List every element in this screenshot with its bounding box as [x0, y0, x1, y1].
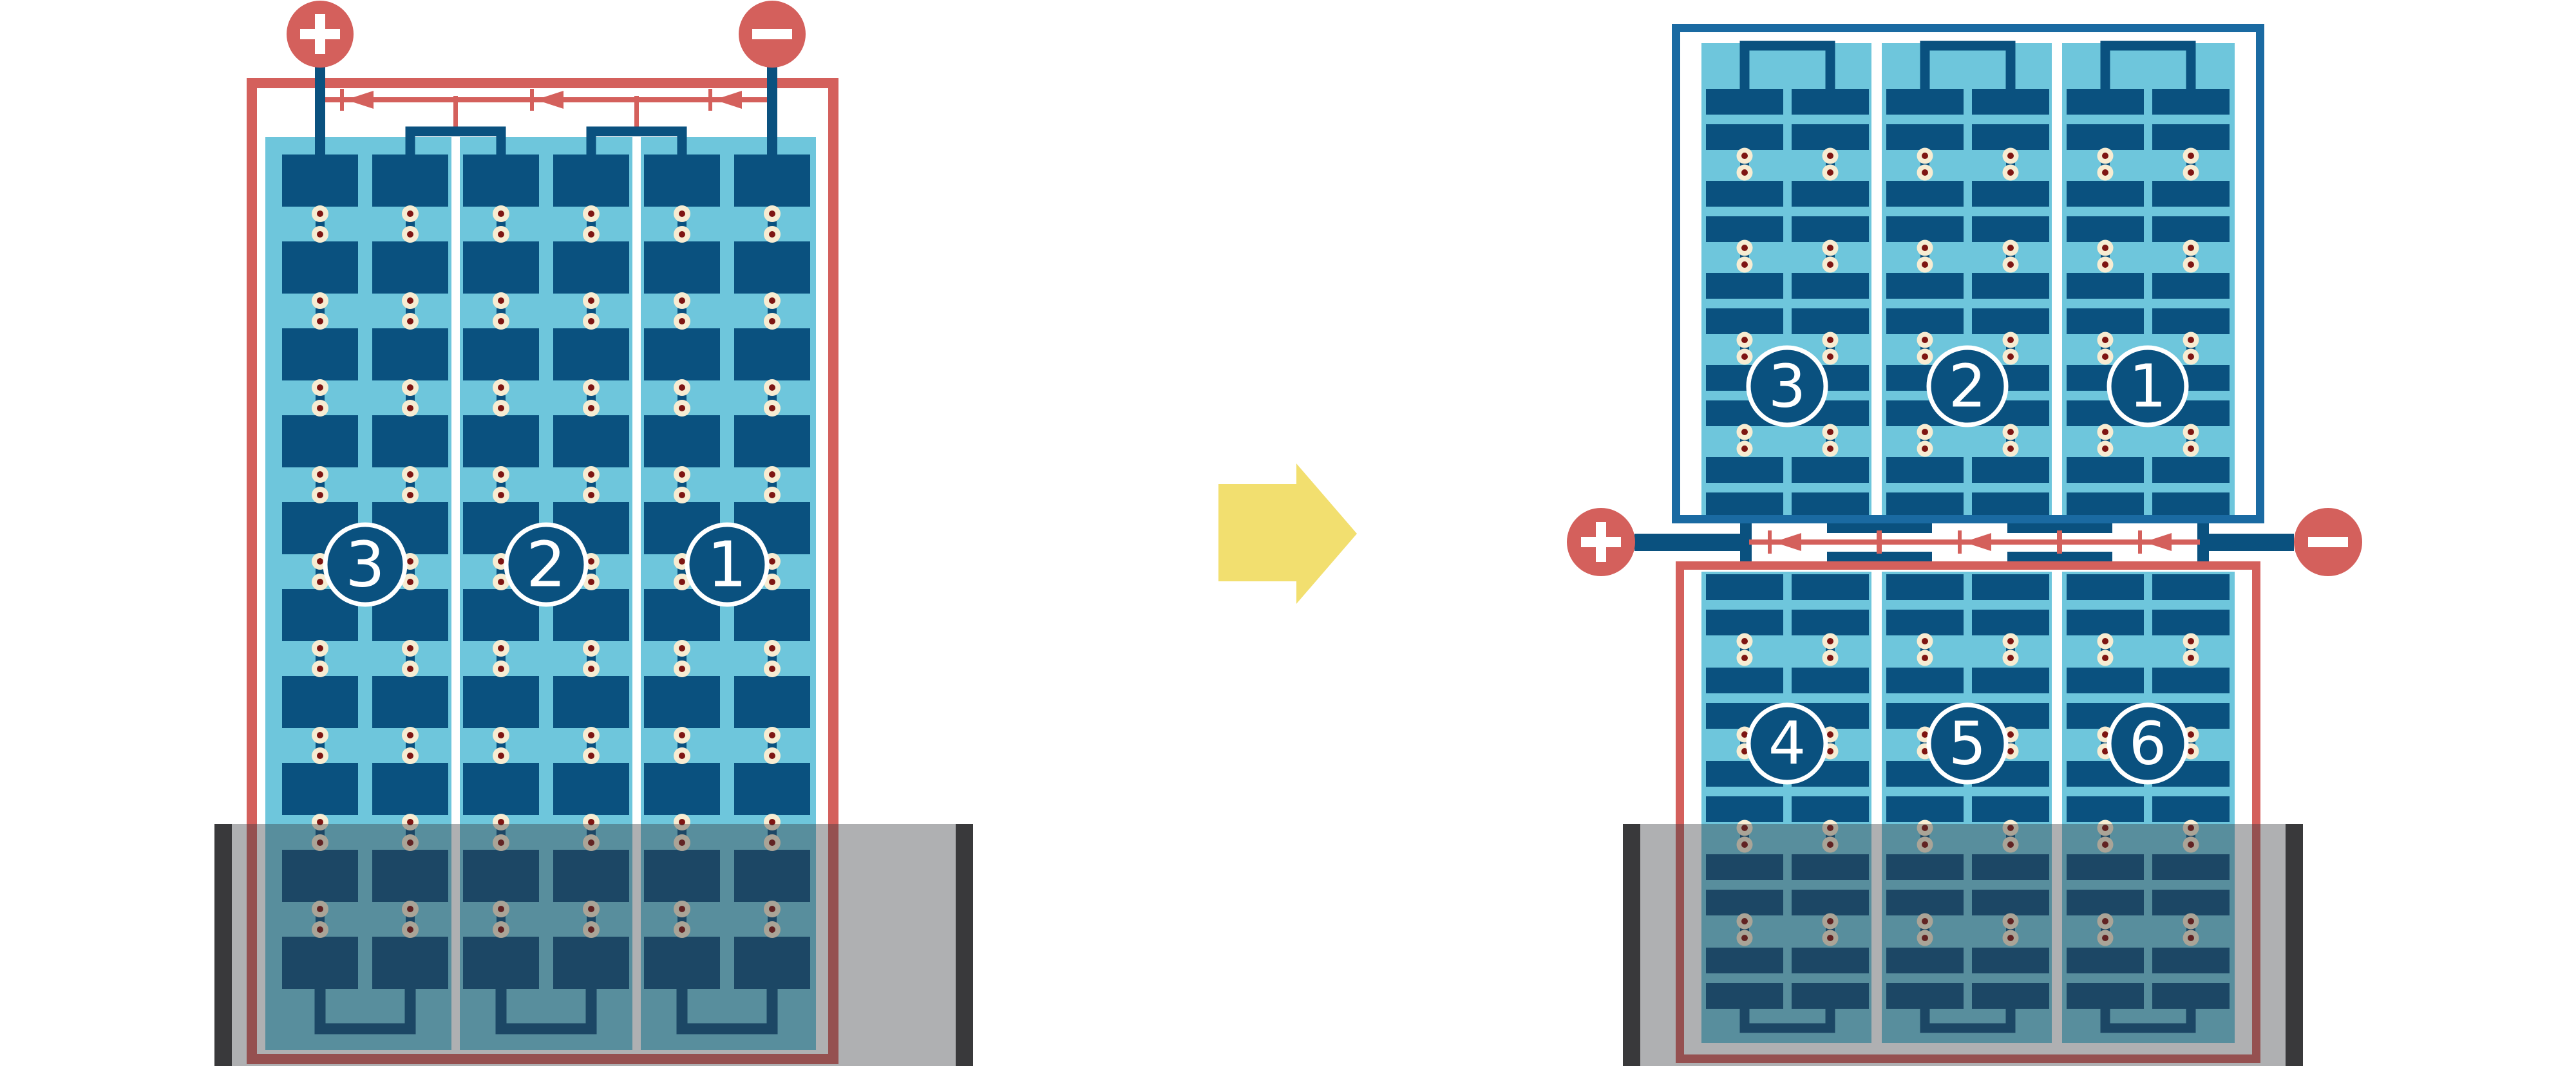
shade-edge-bar: [956, 824, 973, 1066]
solar-cell: [553, 155, 629, 207]
half-cut-cell: [1792, 668, 1869, 693]
solder-joint-core: [2102, 655, 2108, 661]
solder-joint-core: [2188, 429, 2194, 435]
solder-joint-core: [1741, 445, 1748, 452]
solar-cell: [553, 676, 629, 728]
solder-joint-core: [769, 318, 775, 324]
string-badge: 2: [1929, 348, 2006, 425]
solder-joint-core: [588, 471, 594, 478]
solder-joint-core: [679, 492, 685, 498]
half-cut-cell: [2067, 668, 2144, 693]
solder-joint-core: [679, 231, 685, 238]
half-cut-cell: [1792, 89, 1869, 115]
solar-cell: [372, 415, 448, 467]
solder-joint-core: [407, 579, 413, 585]
solder-joint-core: [1827, 445, 1833, 452]
string-label: 5: [1949, 709, 1987, 778]
solder-joint-core: [1741, 638, 1748, 644]
half-cut-cell: [1706, 273, 1783, 299]
solder-joint-core: [1827, 655, 1833, 661]
solder-joint-core: [498, 318, 504, 324]
diode-triangle: [1964, 533, 1991, 551]
solder-joint-core: [407, 318, 413, 324]
solder-joint-core: [769, 666, 775, 672]
solar-cell: [644, 241, 720, 294]
half-cut-cell: [1706, 181, 1783, 207]
shade-overlay-left: [214, 824, 973, 1066]
solder-joint-core: [1922, 638, 1928, 644]
half-cut-cell: [1886, 457, 1964, 483]
string-label: 4: [1768, 709, 1806, 778]
solar-cell: [644, 328, 720, 380]
string-badge: 1: [2109, 348, 2186, 425]
string-label: 1: [707, 529, 747, 601]
solder-joint-core: [769, 558, 775, 565]
solder-joint-core: [2102, 245, 2108, 251]
solder-joint-core: [588, 558, 594, 565]
solder-joint-core: [769, 405, 775, 411]
solder-joint-core: [2188, 261, 2194, 268]
solar-cell: [282, 328, 358, 380]
diode-triangle: [536, 91, 563, 109]
solder-joint-core: [1922, 445, 1928, 452]
half-cut-cell: [1792, 457, 1869, 483]
half-cut-cell: [2152, 668, 2230, 693]
half-cut-cell: [2067, 457, 2144, 483]
bypass-diode-chain: [320, 89, 772, 127]
solar-cell: [372, 676, 448, 728]
solder-joint-core: [317, 297, 323, 304]
diode-bar: [708, 89, 712, 111]
string-separator: [1871, 43, 1882, 515]
half-cut-cell: [1886, 124, 1964, 150]
shade-edge-bar: [1623, 824, 1640, 1066]
half-cut-cell: [2152, 216, 2230, 242]
half-cut-cell: [2152, 273, 2230, 299]
string-badge: 5: [1929, 705, 2006, 782]
solder-joint-core: [588, 231, 594, 238]
solder-joint-core: [317, 753, 323, 759]
minus-icon: [752, 29, 792, 39]
half-cut-cell: [2067, 610, 2144, 635]
solder-joint-core: [769, 492, 775, 498]
solder-joint-core: [769, 231, 775, 238]
solder-joint-core: [2102, 429, 2108, 435]
solder-joint-core: [2188, 445, 2194, 452]
string-label: 3: [1768, 352, 1806, 421]
solder-joint-core: [317, 645, 323, 651]
solder-joint-core: [317, 558, 323, 565]
half-cut-cell: [1706, 124, 1783, 150]
solder-joint-core: [769, 645, 775, 651]
transition-arrow-icon: [1218, 464, 1357, 604]
half-cut-cell: [1792, 216, 1869, 242]
solder-joint-core: [2188, 153, 2194, 159]
solar-cell: [734, 328, 810, 380]
solder-joint-core: [498, 558, 504, 565]
string-badge: 3: [325, 525, 405, 604]
solder-joint-core: [2007, 337, 2014, 343]
solder-joint-core: [1827, 169, 1833, 176]
solder-joint-core: [407, 231, 413, 238]
half-cut-cell: [1972, 273, 2049, 299]
solder-joint-core: [407, 492, 413, 498]
half-cut-cell: [1706, 457, 1783, 483]
solar-cell: [553, 328, 629, 380]
string-separator: [2052, 43, 2062, 515]
half-cut-cell: [2152, 124, 2230, 150]
half-cut-cell: [1706, 668, 1783, 693]
solar-cell: [734, 676, 810, 728]
solder-joint-core: [769, 211, 775, 217]
half-cut-cell: [2067, 89, 2144, 115]
solder-joint-core: [769, 579, 775, 585]
half-cut-cell: [1886, 181, 1964, 207]
solder-joint-core: [679, 666, 685, 672]
half-cut-cell: [2152, 457, 2230, 483]
half-cut-cell: [2067, 216, 2144, 242]
solder-joint-core: [2007, 655, 2014, 661]
solder-joint-core: [588, 211, 594, 217]
solder-joint-core: [2188, 638, 2194, 644]
solder-joint-core: [498, 579, 504, 585]
half-cut-cell: [1972, 181, 2049, 207]
solar-cell: [282, 241, 358, 294]
half-cut-cell: [1886, 668, 1964, 693]
solder-joint-core: [588, 492, 594, 498]
half-cut-cell: [1792, 492, 1869, 515]
negative-terminal: [739, 1, 806, 68]
solar-cell: [282, 676, 358, 728]
solder-joint-core: [1741, 429, 1748, 435]
solder-joint-core: [1741, 169, 1748, 176]
solder-joint-core: [317, 405, 323, 411]
half-cut-cell: [1792, 796, 1869, 822]
string-label: 3: [345, 529, 385, 601]
solder-joint-core: [407, 211, 413, 217]
solder-joint-core: [2007, 245, 2014, 251]
solder-joint-core: [2188, 748, 2194, 754]
solder-joint-core: [317, 666, 323, 672]
solder-joint-core: [588, 645, 594, 651]
diode-triangle: [714, 91, 742, 109]
solar-cell: [734, 763, 810, 815]
shade-edge-bar: [214, 824, 232, 1066]
solder-joint-core: [679, 297, 685, 304]
half-cut-cell: [1792, 124, 1869, 150]
solar-cell: [372, 155, 448, 207]
solar-cell: [372, 241, 448, 294]
solder-joint-core: [2102, 353, 2108, 360]
solar-cell: [463, 328, 539, 380]
half-cut-cell: [2067, 308, 2144, 334]
solder-joint-core: [2188, 353, 2194, 360]
half-cut-cell: [2152, 610, 2230, 635]
solder-joint-core: [498, 471, 504, 478]
solder-joint-core: [317, 492, 323, 498]
solder-joint-core: [2007, 445, 2014, 452]
solar-cell: [553, 415, 629, 467]
solder-joint-core: [317, 384, 323, 391]
positive-terminal: [287, 1, 354, 68]
solder-joint-core: [588, 384, 594, 391]
shade-overlay-right: [1623, 824, 2303, 1066]
half-cut-cell: [1972, 89, 2049, 115]
solder-joint-core: [498, 666, 504, 672]
solder-joint-core: [1741, 337, 1748, 343]
string-badge: 6: [2109, 705, 2186, 782]
solar-cell: [463, 155, 539, 207]
solder-joint-core: [407, 666, 413, 672]
string-badge: 2: [506, 525, 586, 604]
half-cut-cell: [1886, 796, 1964, 822]
solder-joint-core: [2102, 638, 2108, 644]
half-cut-cell: [1886, 273, 1964, 299]
solder-joint-core: [679, 753, 685, 759]
half-cut-cell: [1886, 574, 1964, 600]
solder-joint-core: [407, 732, 413, 738]
diode-junction-drop: [2057, 530, 2062, 554]
half-cut-cell: [1972, 124, 2049, 150]
half-cut-cell: [1972, 308, 2049, 334]
solder-joint-core: [2188, 169, 2194, 176]
solder-joint-core: [317, 732, 323, 738]
solder-joint-core: [1741, 261, 1748, 268]
solar-module-shading-diagram: 3 2 1: [0, 0, 2576, 1068]
half-cut-cell: [1972, 457, 2049, 483]
solar-cell: [644, 676, 720, 728]
solder-joint-core: [588, 297, 594, 304]
solder-joint-core: [679, 558, 685, 565]
solder-joint-core: [679, 384, 685, 391]
solder-joint-core: [1741, 153, 1748, 159]
half-cut-cell: [1706, 216, 1783, 242]
half-cut-cell: [1886, 492, 1964, 515]
solder-joint-core: [1741, 353, 1748, 360]
solder-joint-core: [679, 579, 685, 585]
solder-joint-core: [1922, 337, 1928, 343]
half-cut-cell: [1706, 308, 1783, 334]
solder-joint-core: [1827, 353, 1833, 360]
solar-cell: [553, 763, 629, 815]
half-cut-cell: [1972, 796, 2049, 822]
solder-joint-core: [1741, 655, 1748, 661]
half-cut-cell: [1972, 668, 2049, 693]
solder-joint-core: [679, 318, 685, 324]
half-cut-cell: [1792, 308, 1869, 334]
solder-joint-core: [317, 579, 323, 585]
solder-joint-core: [2102, 169, 2108, 176]
solder-joint-core: [498, 645, 504, 651]
solar-cell: [372, 328, 448, 380]
negative-terminal-wire: [2197, 534, 2294, 551]
solar-cell: [644, 415, 720, 467]
half-cut-cell: [2067, 492, 2144, 515]
solder-joint-core: [1922, 261, 1928, 268]
solder-joint-core: [679, 471, 685, 478]
solder-joint-core: [2007, 731, 2014, 738]
solder-joint-core: [2102, 337, 2108, 343]
plus-v-bar: [1596, 522, 1606, 562]
diode-bar: [340, 89, 344, 111]
solder-joint-core: [1827, 731, 1833, 738]
shade-edge-bar: [2286, 824, 2303, 1066]
solder-joint-core: [498, 231, 504, 238]
solder-joint-core: [769, 297, 775, 304]
solder-joint-core: [1922, 429, 1928, 435]
solar-cell: [553, 241, 629, 294]
solar-cell: [734, 415, 810, 467]
solder-joint-core: [588, 405, 594, 411]
solder-joint-core: [769, 384, 775, 391]
half-cut-cell: [1792, 273, 1869, 299]
solder-joint-core: [2102, 153, 2108, 159]
half-cut-cell: [1792, 574, 1869, 600]
solder-joint-core: [1827, 261, 1833, 268]
half-cut-cell: [1886, 89, 1964, 115]
solder-joint-core: [2007, 153, 2014, 159]
positive-terminal: [1567, 508, 1635, 576]
solder-joint-core: [2102, 261, 2108, 268]
half-cut-cell: [2152, 796, 2230, 822]
half-cut-cell: [1886, 216, 1964, 242]
half-cut-cell: [2152, 492, 2230, 515]
diode-junction-drop: [1877, 530, 1882, 554]
solder-joint-core: [1827, 748, 1833, 754]
diode-triangle: [1774, 533, 1801, 551]
solder-joint-core: [317, 471, 323, 478]
solder-joint-core: [317, 318, 323, 324]
solar-cell: [372, 763, 448, 815]
solar-cell: [282, 155, 358, 207]
solder-joint-core: [2007, 261, 2014, 268]
solder-joint-core: [1922, 353, 1928, 360]
string-badge: 1: [687, 525, 767, 604]
solder-joint-core: [769, 753, 775, 759]
half-cut-cell: [1792, 610, 1869, 635]
shade-region: [1623, 824, 2303, 1066]
solder-joint-core: [588, 666, 594, 672]
solder-joint-core: [498, 405, 504, 411]
half-cut-cell: [2067, 574, 2144, 600]
solder-joint-core: [317, 211, 323, 217]
string-label: 1: [2129, 352, 2167, 421]
solar-cell: [734, 155, 810, 207]
half-cut-cell: [1972, 574, 2049, 600]
string-badge: 4: [1748, 705, 1826, 782]
solder-joint-core: [1827, 429, 1833, 435]
plus-v-bar: [315, 14, 325, 54]
solder-joint-core: [498, 732, 504, 738]
solder-joint-core: [407, 753, 413, 759]
minus-icon: [2308, 537, 2348, 547]
string-label: 6: [2129, 709, 2167, 778]
solder-joint-core: [407, 405, 413, 411]
half-cut-cell: [1972, 610, 2049, 635]
solder-joint-core: [407, 384, 413, 391]
diode-bar: [530, 89, 534, 111]
solder-joint-core: [1922, 169, 1928, 176]
solar-cell: [463, 763, 539, 815]
half-cut-cell: [1886, 610, 1964, 635]
half-cut-cell: [1706, 796, 1783, 822]
solder-joint-core: [1827, 153, 1833, 159]
solder-joint-core: [2007, 429, 2014, 435]
solder-joint-core: [679, 405, 685, 411]
solder-joint-core: [588, 753, 594, 759]
solder-joint-core: [2188, 337, 2194, 343]
half-cut-cell: [1792, 181, 1869, 207]
string-label: 2: [1949, 352, 1987, 421]
half-cut-cell: [2067, 124, 2144, 150]
solder-joint-core: [498, 384, 504, 391]
diode-junction-drop: [634, 96, 639, 127]
solder-joint-core: [1741, 245, 1748, 251]
half-cut-cell: [2067, 181, 2144, 207]
solder-joint-core: [407, 297, 413, 304]
solder-joint-core: [498, 492, 504, 498]
solar-cell: [644, 763, 720, 815]
diode-triangle: [2144, 533, 2172, 551]
half-cut-cell: [2067, 273, 2144, 299]
solder-joint-core: [679, 645, 685, 651]
solar-cell: [282, 763, 358, 815]
half-cut-cell: [1706, 89, 1783, 115]
half-cut-cell: [2152, 574, 2230, 600]
solar-cell: [463, 676, 539, 728]
solder-joint-core: [1827, 638, 1833, 644]
solder-joint-core: [317, 231, 323, 238]
half-cut-cell: [2152, 308, 2230, 334]
diode-triangle: [346, 91, 374, 109]
solder-joint-core: [498, 211, 504, 217]
half-cut-cell: [1706, 492, 1783, 515]
half-cut-cell: [1972, 492, 2049, 515]
solder-joint-core: [769, 732, 775, 738]
solar-cell: [644, 155, 720, 207]
half-cut-cell: [1706, 610, 1783, 635]
solder-joint-core: [588, 579, 594, 585]
shade-region: [214, 824, 973, 1066]
solder-joint-core: [1922, 655, 1928, 661]
solder-joint-core: [2188, 245, 2194, 251]
solder-joint-core: [2007, 353, 2014, 360]
solder-joint-core: [679, 211, 685, 217]
solar-cell: [734, 241, 810, 294]
string-label: 2: [526, 529, 566, 601]
diode-junction-drop: [453, 96, 458, 127]
solder-joint-core: [2188, 731, 2194, 738]
half-cut-cell: [1886, 308, 1964, 334]
diode-bar: [1958, 530, 1962, 554]
solder-joint-core: [2007, 169, 2014, 176]
bypass-diode-chain: [1749, 530, 2200, 554]
solder-joint-core: [407, 471, 413, 478]
solder-joint-core: [1922, 153, 1928, 159]
top-half-box: 3 2 1: [1676, 28, 2260, 520]
diode-bar: [1768, 530, 1772, 554]
solder-joint-core: [1827, 337, 1833, 343]
solder-joint-core: [588, 318, 594, 324]
solar-cell: [282, 415, 358, 467]
solder-joint-core: [2188, 655, 2194, 661]
positive-terminal-wire: [1634, 534, 1752, 551]
solder-joint-core: [2007, 748, 2014, 754]
solar-cell: [463, 241, 539, 294]
string-badge: 3: [1748, 348, 1826, 425]
half-cut-cell: [2067, 796, 2144, 822]
negative-terminal: [2294, 508, 2362, 576]
